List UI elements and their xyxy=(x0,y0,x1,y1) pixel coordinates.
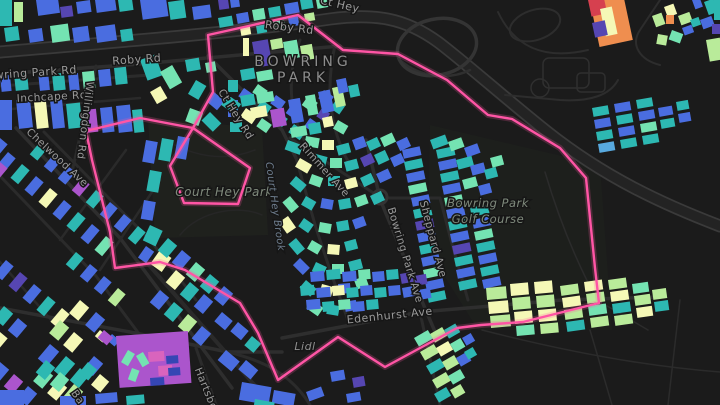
building xyxy=(0,0,12,26)
building xyxy=(327,244,340,255)
building xyxy=(462,333,475,346)
building xyxy=(166,355,179,364)
building xyxy=(352,216,367,230)
building xyxy=(436,341,453,357)
road xyxy=(668,300,680,405)
building xyxy=(69,300,89,321)
building xyxy=(300,0,314,10)
building xyxy=(346,287,359,298)
building xyxy=(150,377,165,386)
building xyxy=(293,258,310,275)
building xyxy=(632,282,649,294)
building xyxy=(322,116,334,128)
building xyxy=(250,105,268,119)
building xyxy=(612,301,631,313)
building xyxy=(638,109,655,121)
building xyxy=(38,188,57,208)
building xyxy=(0,100,12,130)
building xyxy=(256,69,273,82)
building xyxy=(596,129,613,141)
map-label: Hartsbo xyxy=(192,366,220,405)
building xyxy=(194,294,213,314)
building xyxy=(706,38,720,62)
building xyxy=(608,277,627,289)
building xyxy=(592,105,609,117)
building xyxy=(10,164,29,184)
building xyxy=(614,101,631,113)
building xyxy=(352,136,367,150)
building xyxy=(14,2,23,22)
building xyxy=(301,196,316,211)
building xyxy=(388,285,401,296)
map-label: Lidl xyxy=(294,340,315,353)
building xyxy=(510,282,529,296)
building xyxy=(348,259,363,272)
building xyxy=(512,296,531,310)
building xyxy=(308,122,322,135)
building xyxy=(338,198,352,210)
building xyxy=(332,285,345,296)
building xyxy=(95,24,117,43)
building xyxy=(714,0,720,20)
building xyxy=(298,218,314,233)
building xyxy=(618,125,635,137)
building xyxy=(656,34,668,46)
building xyxy=(306,299,321,310)
building xyxy=(80,264,98,283)
building xyxy=(0,332,8,349)
building xyxy=(614,313,633,325)
building xyxy=(372,271,385,282)
building xyxy=(188,80,206,100)
building xyxy=(76,0,92,14)
building xyxy=(28,28,44,43)
building xyxy=(150,86,167,104)
building xyxy=(140,0,169,20)
map-label: wring Park Rd xyxy=(0,63,77,82)
road xyxy=(505,80,618,100)
building xyxy=(270,38,284,50)
building xyxy=(150,290,169,310)
building xyxy=(636,97,653,109)
building xyxy=(218,0,229,10)
building xyxy=(516,324,535,336)
building xyxy=(678,12,693,26)
building xyxy=(358,269,371,280)
building xyxy=(8,318,27,338)
building xyxy=(536,294,555,308)
building xyxy=(24,176,43,196)
building xyxy=(91,374,109,392)
building xyxy=(300,285,315,296)
building xyxy=(404,158,423,171)
building xyxy=(318,90,334,114)
building xyxy=(236,12,250,24)
building xyxy=(318,222,332,234)
building xyxy=(270,108,287,128)
building xyxy=(374,287,387,298)
building xyxy=(652,13,666,28)
building xyxy=(272,390,296,405)
building xyxy=(348,84,360,98)
building xyxy=(22,284,41,304)
building xyxy=(214,312,232,330)
building xyxy=(326,269,341,280)
building xyxy=(160,65,182,89)
building xyxy=(386,269,399,280)
map-svg: Ct HeyRoby RdRoby Rdwring Park RdInchcap… xyxy=(0,0,720,405)
building xyxy=(336,143,351,156)
building xyxy=(692,0,703,9)
building xyxy=(336,220,350,232)
building xyxy=(338,299,351,310)
building xyxy=(98,69,112,87)
building xyxy=(352,376,366,388)
building xyxy=(330,158,342,168)
building xyxy=(660,118,675,129)
building xyxy=(85,312,105,333)
building xyxy=(95,0,117,13)
road-loop xyxy=(506,3,565,48)
road xyxy=(420,312,440,405)
building xyxy=(322,140,334,150)
building xyxy=(376,169,392,184)
building xyxy=(52,200,71,220)
map-canvas[interactable]: Ct HeyRoby RdRoby Rdwring Park RdInchcap… xyxy=(0,0,720,405)
building xyxy=(442,355,459,371)
building xyxy=(238,360,258,379)
building xyxy=(654,300,669,312)
map-label: BOWRING xyxy=(254,54,351,70)
building xyxy=(54,356,75,378)
building xyxy=(192,326,211,346)
building xyxy=(380,133,396,148)
building xyxy=(185,58,201,72)
building xyxy=(642,133,659,145)
building xyxy=(658,106,673,117)
building xyxy=(230,322,248,340)
building xyxy=(228,80,238,92)
building xyxy=(282,196,299,213)
plot-outline xyxy=(577,73,605,92)
building xyxy=(374,150,390,165)
building xyxy=(354,194,369,208)
map-label: Golf Course xyxy=(452,212,525,226)
building xyxy=(666,15,674,24)
building xyxy=(330,370,346,382)
building xyxy=(316,287,331,298)
building xyxy=(344,239,358,252)
building xyxy=(306,387,324,402)
building xyxy=(168,367,181,376)
building xyxy=(120,28,134,42)
building xyxy=(634,294,651,306)
building xyxy=(243,38,249,56)
building xyxy=(192,4,212,19)
building xyxy=(0,362,9,382)
building xyxy=(95,392,118,404)
building xyxy=(80,224,99,244)
building xyxy=(534,280,553,294)
building xyxy=(488,300,509,314)
building xyxy=(305,94,318,115)
building xyxy=(60,5,73,18)
building xyxy=(50,99,65,129)
building xyxy=(63,332,83,353)
building xyxy=(168,0,186,20)
building xyxy=(346,392,361,403)
building xyxy=(366,299,379,310)
building xyxy=(450,338,465,353)
building xyxy=(252,8,266,21)
building xyxy=(406,170,425,183)
building xyxy=(310,271,325,282)
building xyxy=(640,121,657,133)
building xyxy=(128,226,146,245)
building xyxy=(616,113,633,125)
building xyxy=(390,153,405,167)
building xyxy=(0,390,24,405)
building xyxy=(352,301,365,312)
building xyxy=(230,0,240,8)
building xyxy=(108,288,126,307)
building xyxy=(678,112,691,123)
building xyxy=(322,301,335,312)
building xyxy=(148,351,165,362)
building xyxy=(594,117,611,129)
building xyxy=(540,322,559,334)
building xyxy=(360,285,373,296)
building xyxy=(36,0,60,16)
building xyxy=(288,98,304,124)
building xyxy=(141,200,156,221)
building xyxy=(309,174,324,188)
building xyxy=(342,271,357,282)
map-label: Court Hey Park xyxy=(175,185,273,199)
map-label: PARK xyxy=(277,70,329,86)
building xyxy=(450,384,465,399)
building xyxy=(118,0,134,12)
map-label: Bowring Park xyxy=(447,196,530,210)
building xyxy=(4,26,20,42)
building xyxy=(669,30,684,44)
building xyxy=(448,369,465,385)
building xyxy=(610,289,629,301)
building xyxy=(426,358,445,375)
building xyxy=(486,286,507,300)
road xyxy=(636,0,660,65)
building xyxy=(620,137,637,149)
building xyxy=(598,141,615,153)
building xyxy=(652,288,667,300)
building xyxy=(114,67,128,85)
road xyxy=(590,330,612,405)
building xyxy=(712,24,720,34)
building xyxy=(288,238,305,255)
building xyxy=(66,252,84,271)
road xyxy=(498,12,588,53)
building xyxy=(408,182,427,195)
building xyxy=(636,306,653,318)
building xyxy=(126,394,145,405)
building xyxy=(72,26,90,43)
building xyxy=(50,23,70,42)
building xyxy=(676,100,689,111)
building xyxy=(320,198,334,210)
